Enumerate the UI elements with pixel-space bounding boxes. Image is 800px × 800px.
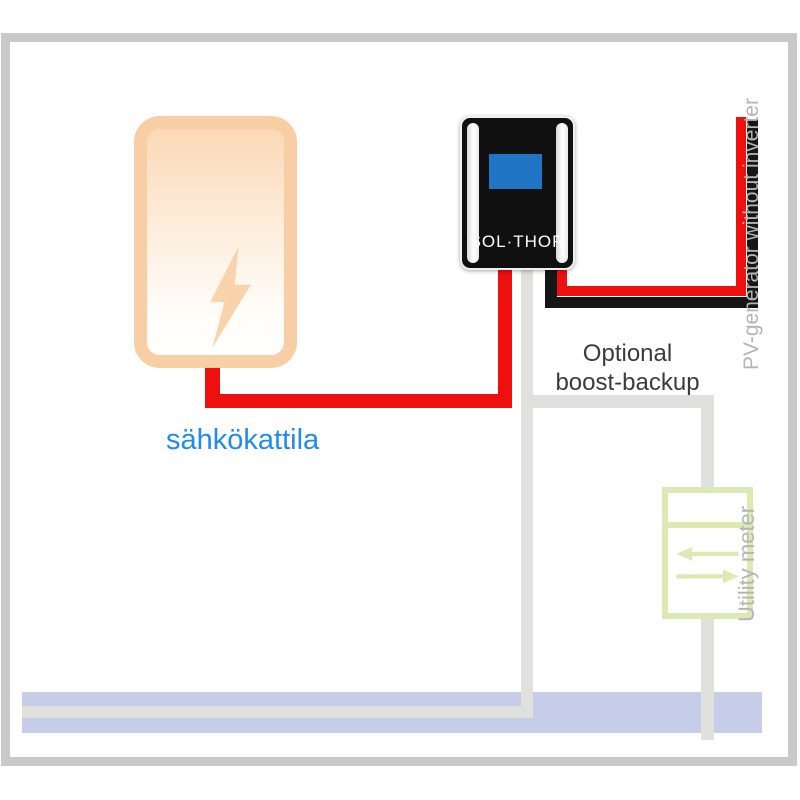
boiler-label: sähkökattila <box>166 424 319 457</box>
electric-boiler <box>134 116 297 368</box>
pv-generator-label: PV-generator without inverter <box>739 98 764 370</box>
pv-black-wire-horizontal <box>545 297 758 308</box>
boost-backup-label-line2: boost-backup <box>540 368 715 397</box>
boost-backup-label-line1: Optional <box>540 339 715 368</box>
neutral-wire-vertical <box>521 262 533 718</box>
device-screen <box>489 154 542 189</box>
utility-meter-label: Utility meter <box>734 506 760 622</box>
boost-backup-wire-vertical <box>701 395 714 487</box>
device-name-label: SOL·THOR <box>462 232 573 252</box>
boost-backup-label: Optional boost-backup <box>540 339 715 397</box>
lightning-bolt-icon <box>198 245 254 349</box>
bidirectional-arrows-icon <box>673 541 742 591</box>
boiler-wire-riser <box>498 262 512 408</box>
wiring-diagram: SOL·THOR sähkökattila Optional boost-bac… <box>0 0 800 800</box>
pv-red-wire-horizontal <box>556 286 746 296</box>
sol-thor-device: SOL·THOR <box>460 116 575 270</box>
meter-output-wire <box>701 619 714 740</box>
boiler-wire-horizontal <box>205 394 512 408</box>
neutral-wire-horizontal <box>22 706 533 718</box>
